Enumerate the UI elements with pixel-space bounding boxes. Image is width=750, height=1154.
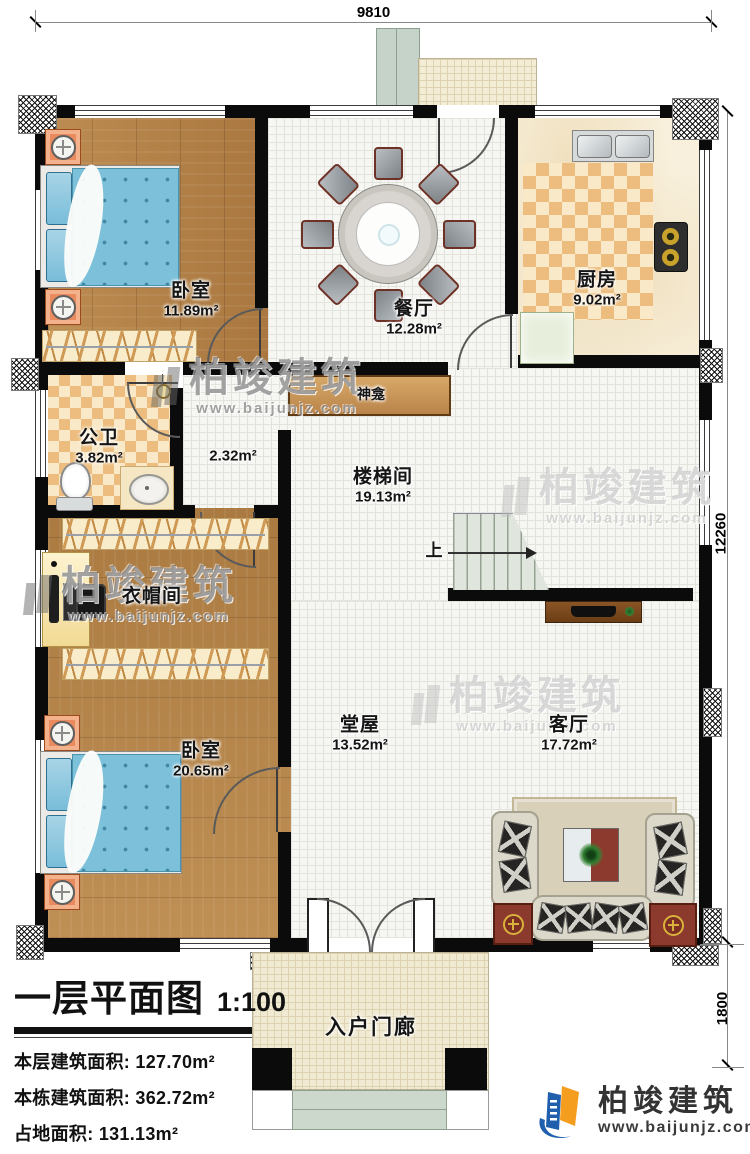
- dresser-item: [49, 575, 59, 623]
- nightstand: [44, 874, 80, 910]
- room-label-porch: 入户门廊: [325, 1016, 417, 1040]
- hatch-block: [11, 358, 39, 391]
- wall-segment: [255, 118, 268, 308]
- title-rule-thin: [14, 1037, 252, 1038]
- dim-ext-line: [700, 944, 744, 945]
- medallion-icon: [503, 914, 524, 935]
- room-label-bedroom2: 卧室 20.65m²: [173, 740, 229, 779]
- stairs-arrowhead-icon: [526, 547, 537, 559]
- lamp-icon: [51, 295, 76, 320]
- dim-ext-line: [712, 1067, 744, 1068]
- dim-ext-line: [711, 10, 712, 32]
- dim-line: [35, 22, 712, 23]
- hatch-block: [700, 348, 723, 383]
- info-panel: 一层平面图1:100 本层建筑面积: 127.70m² 本栋建筑面积: 362.…: [14, 968, 286, 1154]
- sink-basin: [577, 135, 612, 158]
- door-opening: [437, 105, 499, 118]
- brand-name: 柏竣建筑: [598, 1085, 750, 1120]
- porch-steps: [292, 1090, 447, 1130]
- wall-segment: [505, 118, 518, 314]
- sofa-cushion: [499, 857, 532, 893]
- hanger-rack: [62, 648, 269, 680]
- sofa-cushion: [537, 902, 567, 934]
- plant-icon: [625, 607, 634, 616]
- wall-segment: [278, 505, 291, 767]
- room-label-shrine: 神龛: [357, 386, 385, 402]
- brand-logo: 柏竣建筑 www.baijunjz.com: [534, 1080, 750, 1142]
- sofa-cushion: [498, 820, 532, 857]
- pendant-lamp-icon: [156, 384, 171, 399]
- hatch-block: [703, 908, 722, 944]
- dresser-item: [51, 561, 57, 567]
- sofa-cushion: [618, 902, 648, 934]
- lamp-icon: [51, 135, 76, 160]
- wall-segment: [35, 362, 125, 375]
- title-rule: [14, 1027, 252, 1034]
- dim-ext-line: [35, 10, 36, 32]
- room-label-stairhall: 楼梯间 19.13m²: [353, 466, 413, 505]
- room-label-bedroom1: 卧室 11.89m²: [163, 280, 218, 319]
- hatch-block: [703, 688, 722, 737]
- dim-porch-depth: 1800: [714, 992, 731, 1025]
- room-label-living: 客厅 17.72m²: [541, 714, 597, 753]
- hatch-block: [672, 945, 719, 966]
- brand-logo-text: 柏竣建筑 www.baijunjz.com: [598, 1085, 750, 1138]
- nightstand: [45, 289, 81, 325]
- sofa-right: [645, 813, 695, 909]
- tv-cabinet: [545, 601, 642, 623]
- sink-basin: [615, 135, 650, 158]
- bath-vanity: [120, 466, 174, 510]
- sofa-cushion: [564, 903, 593, 934]
- window: [75, 105, 225, 118]
- brand-logo-icon: [534, 1080, 590, 1142]
- page-title: 一层平面图: [14, 978, 204, 1019]
- dim-right-height: 12260: [712, 513, 729, 555]
- wall-segment: [278, 832, 291, 938]
- stat-footprint-area: 占地面积: 131.13m²: [14, 1120, 286, 1146]
- tv: [571, 606, 616, 617]
- window: [699, 420, 712, 545]
- sofa-cushion: [591, 902, 621, 934]
- window: [35, 390, 48, 477]
- burner-icon: [662, 249, 679, 266]
- lamp-icon: [50, 880, 75, 905]
- stairs-arrow: [448, 552, 528, 554]
- window: [699, 150, 712, 340]
- window: [535, 105, 660, 118]
- wash-basin: [129, 474, 169, 505]
- nightstand: [45, 129, 81, 165]
- coffee-table: [563, 828, 619, 882]
- room-label-mainhall: 堂屋 13.52m²: [332, 714, 388, 753]
- sofa-cushion: [654, 859, 687, 896]
- step-divider: [293, 1109, 446, 1110]
- closet-rack: [42, 330, 197, 362]
- stove: [654, 222, 688, 272]
- room-label-bath: 公卫 3.82m²: [75, 427, 123, 466]
- stool: [76, 584, 106, 618]
- porch-column: [445, 1048, 487, 1090]
- lamp-icon: [50, 721, 75, 746]
- wall-segment: [278, 430, 291, 505]
- sofa-cushion: [653, 822, 688, 860]
- chair: [301, 220, 334, 249]
- bed: [40, 751, 182, 874]
- toilet-bowl: [60, 462, 91, 500]
- stairs-up-label: 上: [426, 541, 443, 561]
- chair: [443, 220, 476, 249]
- toilet-tank: [56, 497, 93, 511]
- room-label-dining: 餐厅 12.28m²: [386, 298, 442, 337]
- brand-url: www.baijunjz.com: [598, 1119, 750, 1137]
- room-label-cloakroom: 衣帽间: [122, 586, 182, 608]
- room-label-hallway: 2.32m²: [209, 447, 257, 464]
- floor-plan: 柏竣建筑 www.baijunjz.com 柏竣建筑 www.baijunjz.…: [0, 0, 750, 1154]
- sofa-bottom: [531, 895, 653, 941]
- nightstand: [44, 715, 80, 751]
- kitchen-counter: [520, 312, 574, 364]
- side-table: [649, 903, 697, 947]
- balcony-door-divider: [396, 28, 397, 117]
- porch-side-pad: [445, 1090, 489, 1130]
- kitchen-sink: [572, 130, 654, 162]
- drain-icon: [145, 486, 149, 490]
- stat-building-area: 本栋建筑面积: 362.72m²: [14, 1084, 286, 1110]
- wall-segment: [268, 362, 448, 375]
- toilet: [56, 462, 92, 510]
- hatch-block: [672, 98, 719, 140]
- title-row: 一层平面图1:100: [14, 968, 286, 1022]
- table-center: [378, 224, 400, 246]
- stat-floor-area: 本层建筑面积: 127.70m²: [14, 1048, 286, 1074]
- room-label-kitchen: 厨房 9.02m²: [573, 269, 621, 308]
- window: [310, 105, 413, 118]
- hatch-block: [16, 925, 44, 960]
- chair: [374, 147, 403, 180]
- medallion-icon: [663, 915, 684, 936]
- hanger-rack: [62, 518, 269, 550]
- window: [180, 938, 270, 952]
- side-table: [493, 903, 533, 945]
- burner-icon: [662, 228, 679, 245]
- armchair: [491, 811, 539, 907]
- scale-label: 1:100: [217, 987, 286, 1017]
- dim-top-width: 9810: [35, 4, 712, 21]
- plant-icon: [579, 843, 603, 867]
- bed: [40, 165, 180, 288]
